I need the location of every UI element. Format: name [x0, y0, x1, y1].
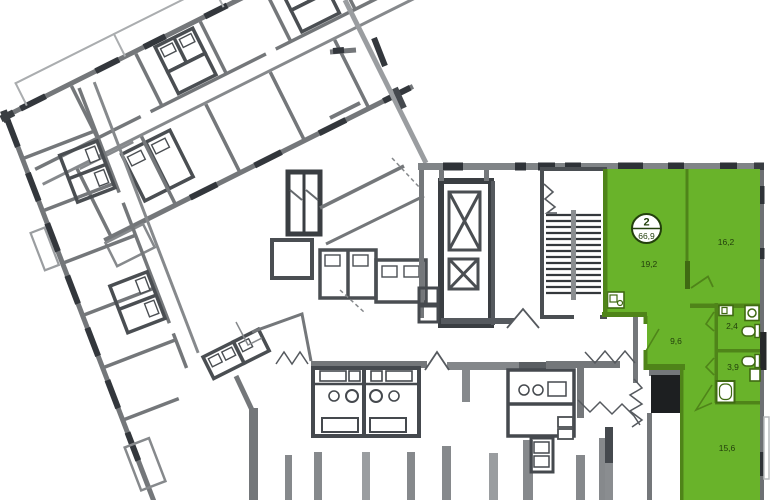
- svg-text:9,6: 9,6: [670, 336, 682, 346]
- svg-text:15,6: 15,6: [719, 443, 736, 453]
- svg-text:3,9: 3,9: [727, 362, 739, 372]
- svg-text:16,2: 16,2: [718, 237, 735, 247]
- svg-text:19,2: 19,2: [641, 259, 658, 269]
- svg-text:66,9: 66,9: [638, 231, 655, 241]
- svg-text:2,4: 2,4: [726, 321, 738, 331]
- svg-text:2: 2: [643, 217, 649, 229]
